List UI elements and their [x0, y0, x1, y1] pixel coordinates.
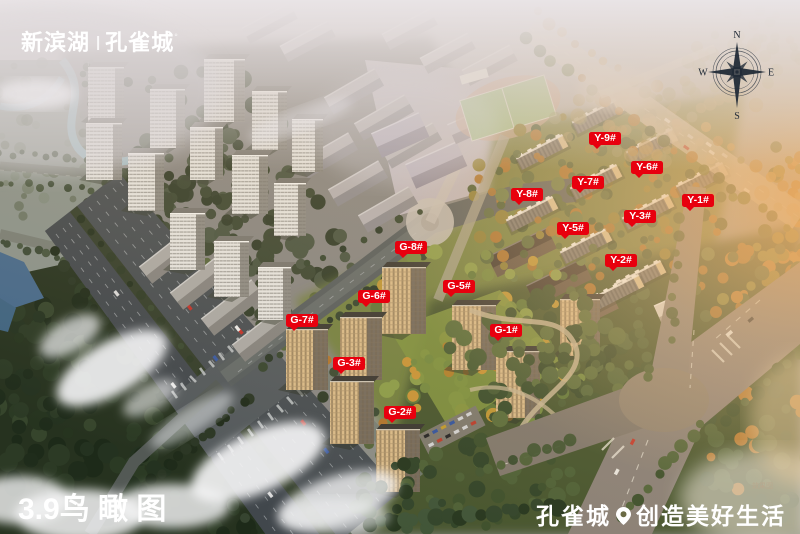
svg-text:S: S — [734, 111, 740, 122]
svg-text:W: W — [698, 68, 708, 79]
svg-text:N: N — [733, 30, 740, 41]
svg-text:E: E — [768, 68, 774, 79]
